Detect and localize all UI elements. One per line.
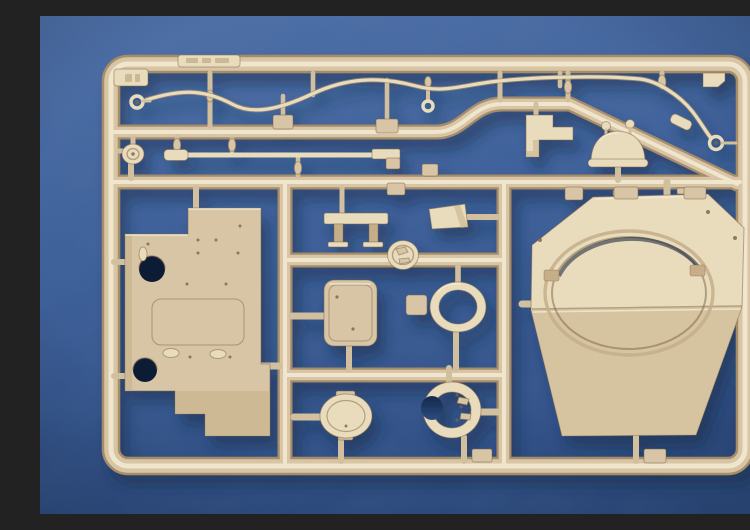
bar-fitting-block <box>565 187 583 200</box>
corner-mark-glyph <box>125 74 132 82</box>
ring-hinge <box>457 397 469 405</box>
cap-disc <box>388 241 419 270</box>
rim-notch <box>544 270 559 281</box>
ring-hinge <box>460 413 471 420</box>
plate-boss <box>139 247 147 261</box>
gate-foot-block <box>472 449 492 462</box>
bar-fitting-block <box>387 183 405 195</box>
sprue-photo-canvas <box>40 16 750 514</box>
pulley-wheel <box>122 144 144 164</box>
cable-gate-block <box>376 119 398 133</box>
bar-fitting-block <box>684 187 706 199</box>
bar-fitting-block <box>422 164 438 176</box>
bar-fitting-block <box>614 187 638 199</box>
rim-notch <box>690 265 705 276</box>
ring-gate-block <box>406 295 427 315</box>
cable-gate-block <box>273 115 293 129</box>
door-hatch <box>324 280 377 346</box>
label-emboss <box>186 58 198 63</box>
wedge-block <box>429 204 468 229</box>
plate-boss <box>210 350 226 359</box>
gate-foot-block <box>644 449 666 463</box>
ring-bite-cutout <box>421 396 443 420</box>
plate-boss <box>163 349 179 358</box>
photo-model-kit-sprue: Photograph of a tan injection-molded pla… <box>40 16 750 514</box>
cupola-flange <box>588 159 648 167</box>
rod-muzzle <box>164 150 188 161</box>
